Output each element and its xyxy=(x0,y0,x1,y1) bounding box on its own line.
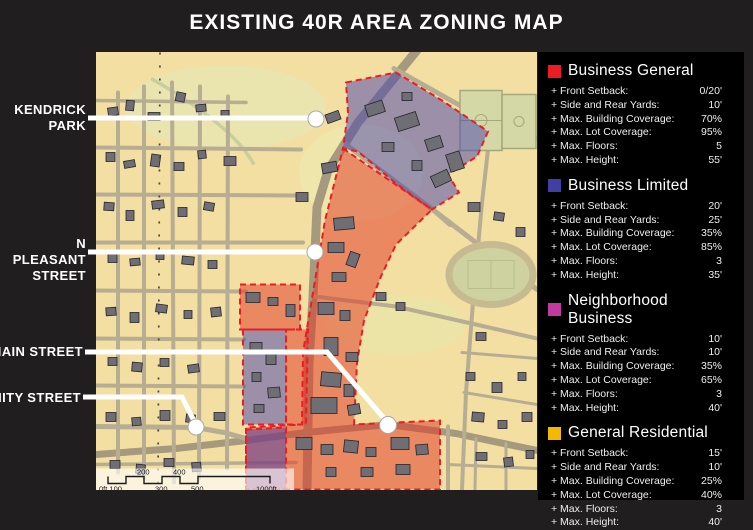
legend-section-business-limited: Business Limited + Front Setback:20' + S… xyxy=(548,177,732,283)
legend-row: + Max. Building Coverage:35% xyxy=(548,227,732,241)
label-line: KENDRICK xyxy=(14,102,86,118)
legend-row: + Max. Lot Coverage:85% xyxy=(548,241,732,255)
legend-row: + Max. Floors:3 xyxy=(548,503,732,517)
label-line: PARK xyxy=(14,118,86,134)
legend-row: + Max. Building Coverage:25% xyxy=(548,475,732,489)
legend-section-title: Business General xyxy=(568,62,694,80)
legend-row: + Max. Building Coverage:35% xyxy=(548,360,732,374)
scale-label: 500 xyxy=(191,485,204,491)
scale-label: 300 xyxy=(155,485,168,491)
neighborhood-business-swatch-icon xyxy=(548,303,561,316)
page-title: EXISTING 40R AREA ZONING MAP xyxy=(0,11,753,35)
scale-label: 0ft 100 xyxy=(99,485,122,491)
business-general-swatch-icon xyxy=(548,65,561,78)
legend-row: + Max. Lot Coverage:95% xyxy=(548,126,732,140)
legend-row: + Front Setback:15' xyxy=(548,447,732,461)
legend-row: + Max. Floors:5 xyxy=(548,140,732,154)
legend-row: + Max. Height:40' xyxy=(548,402,732,416)
legend-row: + Side and Rear Yards:10' xyxy=(548,99,732,113)
general-residential-swatch-icon xyxy=(548,427,561,440)
legend-row: + Side and Rear Yards:25' xyxy=(548,214,732,228)
legend-panel: Business General + Front Setback:0/20' +… xyxy=(538,52,744,500)
legend-row: + Max. Lot Coverage:40% xyxy=(548,489,732,503)
legend-section-general-residential: General Residential + Front Setback:15' … xyxy=(548,424,732,530)
legend-section-title: Neighborhood Business xyxy=(568,292,732,328)
label-n-pleasant-street: N PLEASANT STREET xyxy=(0,236,86,284)
legend-section-neighborhood-business: Neighborhood Business + Front Setback:10… xyxy=(548,292,732,416)
legend-row: + Max. Height:55' xyxy=(548,154,732,168)
label-kendrick-park: KENDRICK PARK xyxy=(14,102,86,134)
map-canvas: 0ft 100 200 300 400 500 1000ft xyxy=(96,52,537,490)
label-line: N PLEASANT xyxy=(0,236,86,268)
legend-row: + Max. Building Coverage:70% xyxy=(548,113,732,127)
legend-row: + Max. Lot Coverage:65% xyxy=(548,374,732,388)
scale-label: 1000ft xyxy=(256,485,278,491)
zoning-map-page: EXISTING 40R AREA ZONING MAP xyxy=(0,0,753,515)
scale-label: 200 xyxy=(137,468,150,477)
legend-row: + Front Setback:0/20' xyxy=(548,85,732,99)
legend-row: + Max. Height:35' xyxy=(548,269,732,283)
legend-row: + Max. Floors:3 xyxy=(548,388,732,402)
scale-bar: 0ft 100 200 300 400 500 1000ft xyxy=(96,468,294,491)
legend-row: + Side and Rear Yards:10' xyxy=(548,461,732,475)
label-line: STREET xyxy=(0,268,86,284)
business-limited-swatch-icon xyxy=(548,179,561,192)
legend-section-title: General Residential xyxy=(568,424,708,442)
legend-row: + Max. Floors:3 xyxy=(548,255,732,269)
label-main-street: MAIN STREET xyxy=(0,344,83,360)
scale-label: 400 xyxy=(173,468,186,477)
legend-row: + Front Setback:10' xyxy=(548,333,732,347)
legend-row: + Front Setback:20' xyxy=(548,200,732,214)
legend-row: + Max. Height:40' xyxy=(548,516,732,530)
label-amity-street: AMITY STREET xyxy=(0,390,81,406)
legend-section-title: Business Limited xyxy=(568,177,688,195)
zoning-map: 0ft 100 200 300 400 500 1000ft xyxy=(96,52,537,490)
legend-section-business-general: Business General + Front Setback:0/20' +… xyxy=(548,62,732,168)
legend-row: + Side and Rear Yards:10' xyxy=(548,346,732,360)
